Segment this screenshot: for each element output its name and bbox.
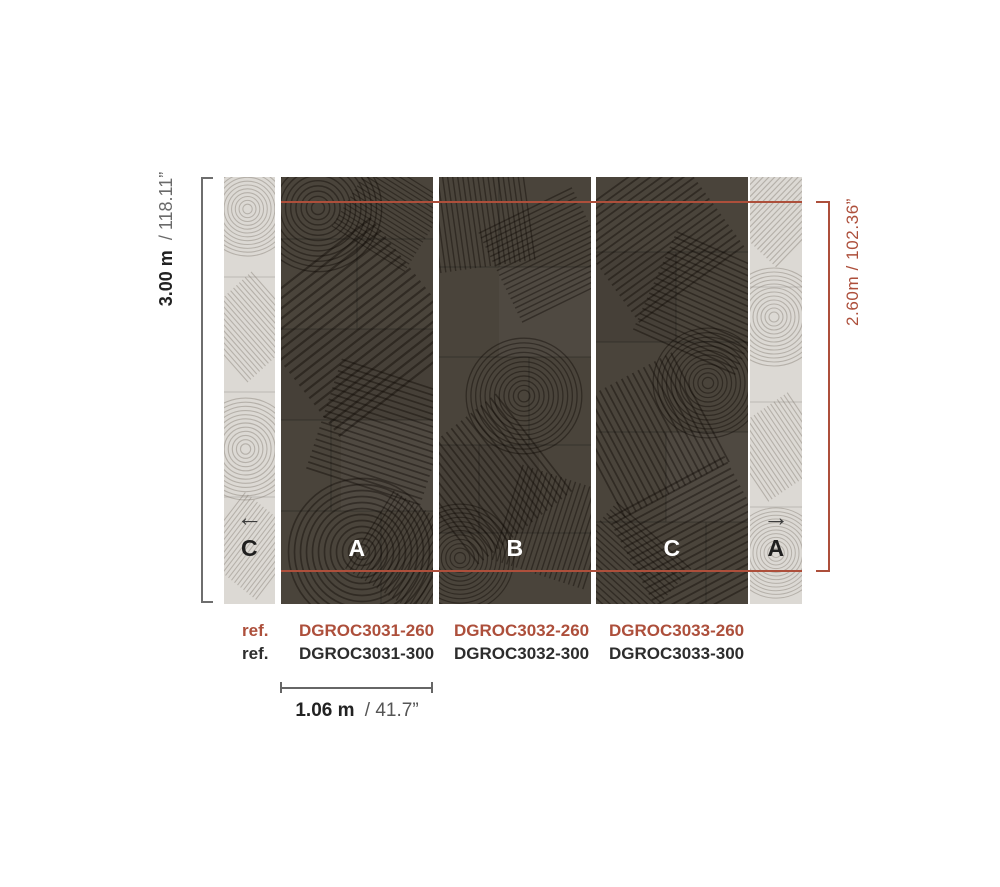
panel-strip-left-repeat-c: ← C <box>224 177 275 604</box>
panel-letter-left: C <box>224 535 275 562</box>
panel-letter-c: C <box>596 535 748 562</box>
panel-strip-b: B <box>439 177 591 604</box>
ref-code: DGROC3033-260 <box>609 621 744 641</box>
panel-strip-a: A <box>281 177 433 604</box>
measure-tick-right <box>431 682 433 693</box>
print-height-dimension-label: 2.60m / 102.36” <box>843 186 867 338</box>
ref-code: DGROC3032-260 <box>454 621 589 641</box>
panel-width-measure-line <box>281 687 433 689</box>
panel-width-metric: 1.06 m <box>295 700 354 721</box>
full-height-dimension-label: 3.00 m / 118.11” <box>156 167 180 311</box>
arrow-right-icon: → <box>750 504 802 530</box>
print-height-line-top <box>281 201 802 203</box>
panel-strip-right-repeat-a: → A <box>750 177 802 604</box>
ref-code: DGROC3031-300 <box>299 644 434 664</box>
ref-code: DGROC3032-300 <box>454 644 589 664</box>
ref-code: DGROC3033-300 <box>609 644 744 664</box>
ref-label-black: ref. <box>242 644 268 664</box>
panel-letter-b: B <box>439 535 591 562</box>
print-height-bracket <box>816 201 830 572</box>
wallpaper-dimension-diagram: 3.00 m / 118.11” ← C <box>0 0 1000 887</box>
full-height-imperial: / 118.11” <box>156 172 176 240</box>
ref-code: DGROC3031-260 <box>299 621 434 641</box>
measure-tick-left <box>280 682 282 693</box>
print-height-line-bottom <box>281 570 802 572</box>
full-height-metric: 3.00 m <box>156 250 176 306</box>
arrow-left-icon: ← <box>224 504 275 530</box>
panel-letter-a: A <box>281 535 433 562</box>
panel-strip-c: C <box>596 177 748 604</box>
panel-width-imperial: / 41.7” <box>365 700 419 721</box>
panel-letter-right: A <box>750 535 802 562</box>
full-height-bracket <box>201 177 213 603</box>
ref-label-red: ref. <box>242 621 268 641</box>
panel-width-dimension-label: 1.06 m / 41.7” <box>257 700 457 722</box>
